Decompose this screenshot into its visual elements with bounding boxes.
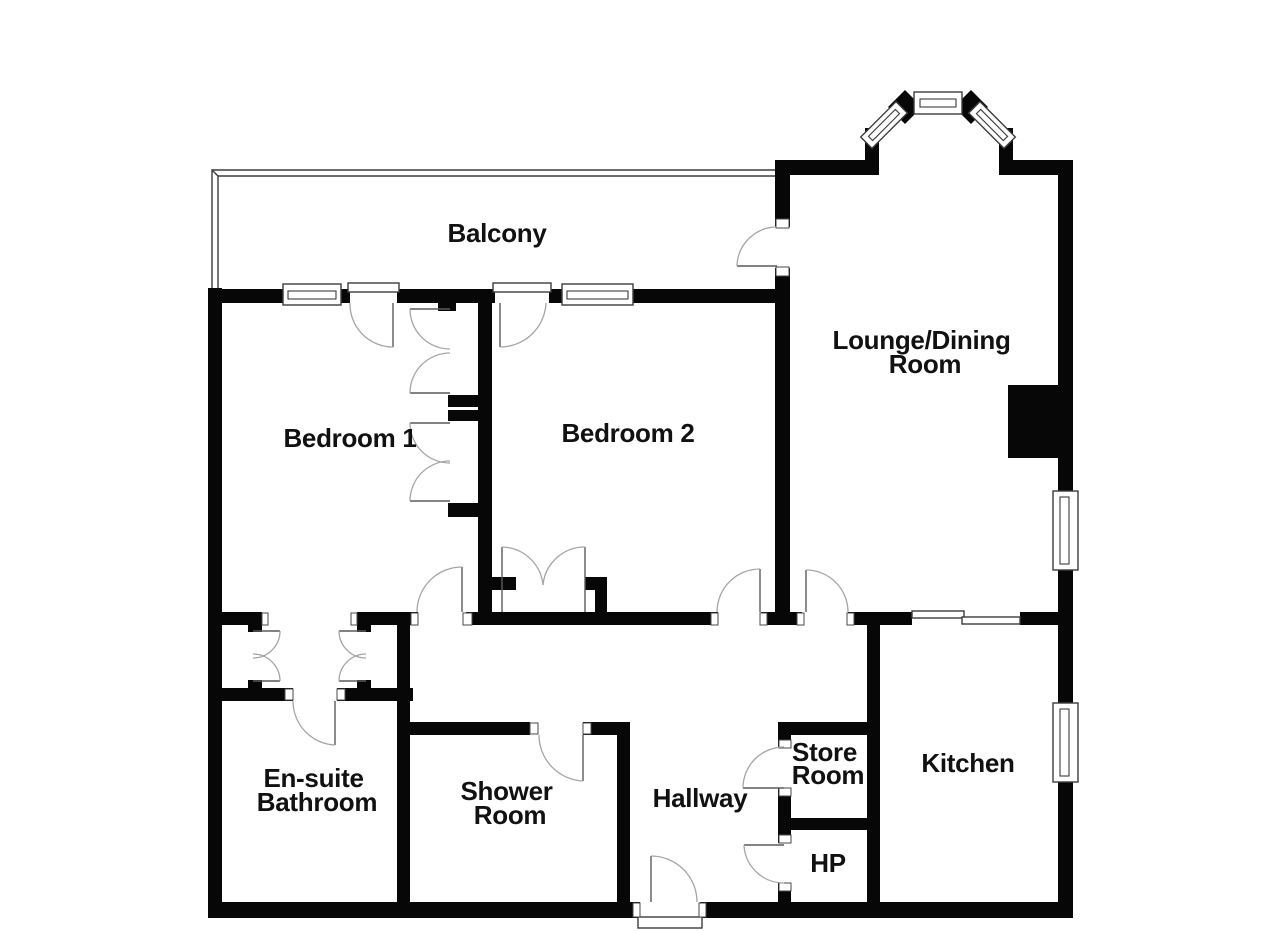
door-lounge-balcony [737, 227, 777, 266]
window-bedroom1-north [283, 284, 341, 305]
wall-north-bedrooms-1 [208, 289, 283, 303]
jamb [779, 835, 791, 843]
room-label-hp: HP [810, 848, 846, 878]
jamb [285, 689, 293, 700]
wall-store-hp-divider [778, 818, 867, 830]
door-swing-arc [539, 735, 583, 781]
window-glass [920, 99, 956, 107]
window-glass [288, 291, 336, 299]
wall-east-lower [1058, 780, 1073, 918]
jamb [530, 723, 538, 734]
bay-window-centre [914, 92, 962, 114]
front-door-threshold [638, 917, 702, 928]
cupboard-doors-east [339, 631, 366, 681]
door-swing-arc [500, 303, 546, 347]
door-swing-arc [417, 567, 462, 612]
jamb [411, 613, 418, 625]
jamb [337, 689, 345, 700]
door-swing-arc [410, 461, 450, 501]
cupboard-doors-west [253, 631, 280, 681]
wall-kitchen-west [867, 612, 880, 918]
wardrobe-stub-a [448, 395, 478, 407]
stub-bed2-door-right-leg [595, 588, 607, 614]
window-lounge-east [1053, 491, 1078, 570]
jamb [760, 613, 767, 625]
jamb [779, 788, 791, 796]
door-swing-arc [806, 570, 848, 612]
archway-line-2 [962, 617, 1020, 624]
jamb [776, 267, 789, 276]
door-bedroom2-east [717, 569, 760, 612]
door-shower [539, 735, 583, 781]
room-label-ensuite: En-suite Bathroom [257, 763, 377, 817]
bay-window-west [861, 102, 908, 149]
wall-north-bedrooms-3 [397, 289, 495, 303]
wall-south-left [208, 902, 640, 918]
room-label-bedroom2: Bedroom 2 [561, 418, 694, 448]
door-swing-arc [350, 303, 393, 347]
wall-lounge-west-upper [775, 160, 790, 227]
room-label-lounge-line2: Room [889, 349, 961, 379]
door-frames [262, 219, 854, 928]
room-label-store: Store Room [792, 737, 864, 790]
wall-north-lounge-east [1010, 160, 1073, 175]
window-kitchen-east [1053, 703, 1078, 782]
wall-east-mid [1058, 568, 1073, 705]
door-swing-arc [410, 353, 450, 393]
wall-bedroom-divider [478, 303, 492, 612]
stub-bed2-door-left [492, 577, 516, 590]
jamb [633, 903, 640, 917]
wall-ensuite-top-1 [208, 688, 293, 701]
jamb [797, 613, 804, 625]
wall-ensuite-shower-divider [397, 612, 410, 904]
door-lounge-entry [806, 570, 848, 612]
doorframe-bedroom1-balcony [348, 283, 399, 292]
door-swing-arc [717, 569, 760, 612]
wardrobe-tick-north [438, 303, 456, 311]
chimney-breast [1008, 385, 1058, 458]
window-glass [567, 291, 628, 299]
room-label-balcony: Balcony [447, 218, 547, 248]
room-label-bedroom1: Bedroom 1 [283, 423, 416, 453]
door-store-room [743, 747, 784, 788]
wall-shower-top-1 [410, 722, 530, 735]
wall-lounge-west-lower [775, 268, 790, 622]
jamb [847, 613, 854, 625]
wardrobe-stub-b [448, 410, 478, 421]
wall-store-top [778, 722, 867, 735]
room-label-store-line2: Room [792, 760, 864, 790]
window-glass [1060, 709, 1069, 776]
wall-hall-top-3 [466, 612, 718, 625]
door-swing-arc [651, 856, 697, 902]
room-label-shower-line2: Room [474, 800, 546, 830]
jamb [463, 613, 472, 625]
door-swing-arc [543, 547, 585, 585]
wall-west [208, 288, 222, 918]
door-bedroom1-entry [417, 567, 462, 612]
door-swing-arc [744, 845, 784, 883]
balcony-railing-mitre [212, 170, 218, 176]
room-label-kitchen: Kitchen [921, 748, 1014, 778]
door-swing-arc [410, 309, 450, 349]
kitchen-archway [912, 611, 1020, 624]
wardrobe-doors-bedroom1 [410, 309, 450, 501]
room-label-lounge: Lounge/Dining Room [833, 325, 1018, 379]
room-label-ensuite-line2: Bathroom [257, 787, 377, 817]
door-bedroom2-balcony [500, 303, 546, 347]
jamb [779, 883, 791, 891]
room-label-shower: Shower Room [460, 776, 559, 830]
archway-line-1 [912, 611, 964, 618]
doorframe-bedroom2-balcony [493, 283, 551, 292]
door-hp [744, 845, 784, 883]
jamb [699, 903, 706, 917]
front-door [651, 856, 697, 902]
bay-window-east [969, 102, 1016, 149]
door-swing-arc [737, 227, 777, 266]
jamb [711, 613, 718, 625]
wall-south-right [700, 902, 1073, 918]
floor-plan-page: Balcony Bedroom 1 Bedroom 2 Lounge/Dinin… [0, 0, 1280, 931]
room-labels: Balcony Bedroom 1 Bedroom 2 Lounge/Dinin… [257, 218, 1018, 878]
door-bedroom1-balcony [350, 303, 393, 347]
window-bedroom2-north [562, 284, 633, 305]
wall-north-bedrooms-5 [633, 289, 790, 303]
door-swing-arc [293, 701, 335, 745]
jamb [583, 723, 591, 734]
door-swing-arc [743, 747, 784, 788]
wall-hall-top-6 [1020, 612, 1058, 625]
room-label-hallway: Hallway [653, 783, 749, 813]
wall-east-upper [1058, 160, 1073, 493]
jamb [776, 219, 789, 228]
jamb [351, 613, 357, 625]
jamb [262, 613, 268, 625]
wardrobe-stub-c [448, 503, 478, 517]
wall-shower-east [617, 722, 630, 904]
window-glass [1060, 497, 1069, 564]
floor-plan: Balcony Bedroom 1 Bedroom 2 Lounge/Dinin… [0, 0, 1280, 931]
door-ensuite [293, 701, 335, 745]
